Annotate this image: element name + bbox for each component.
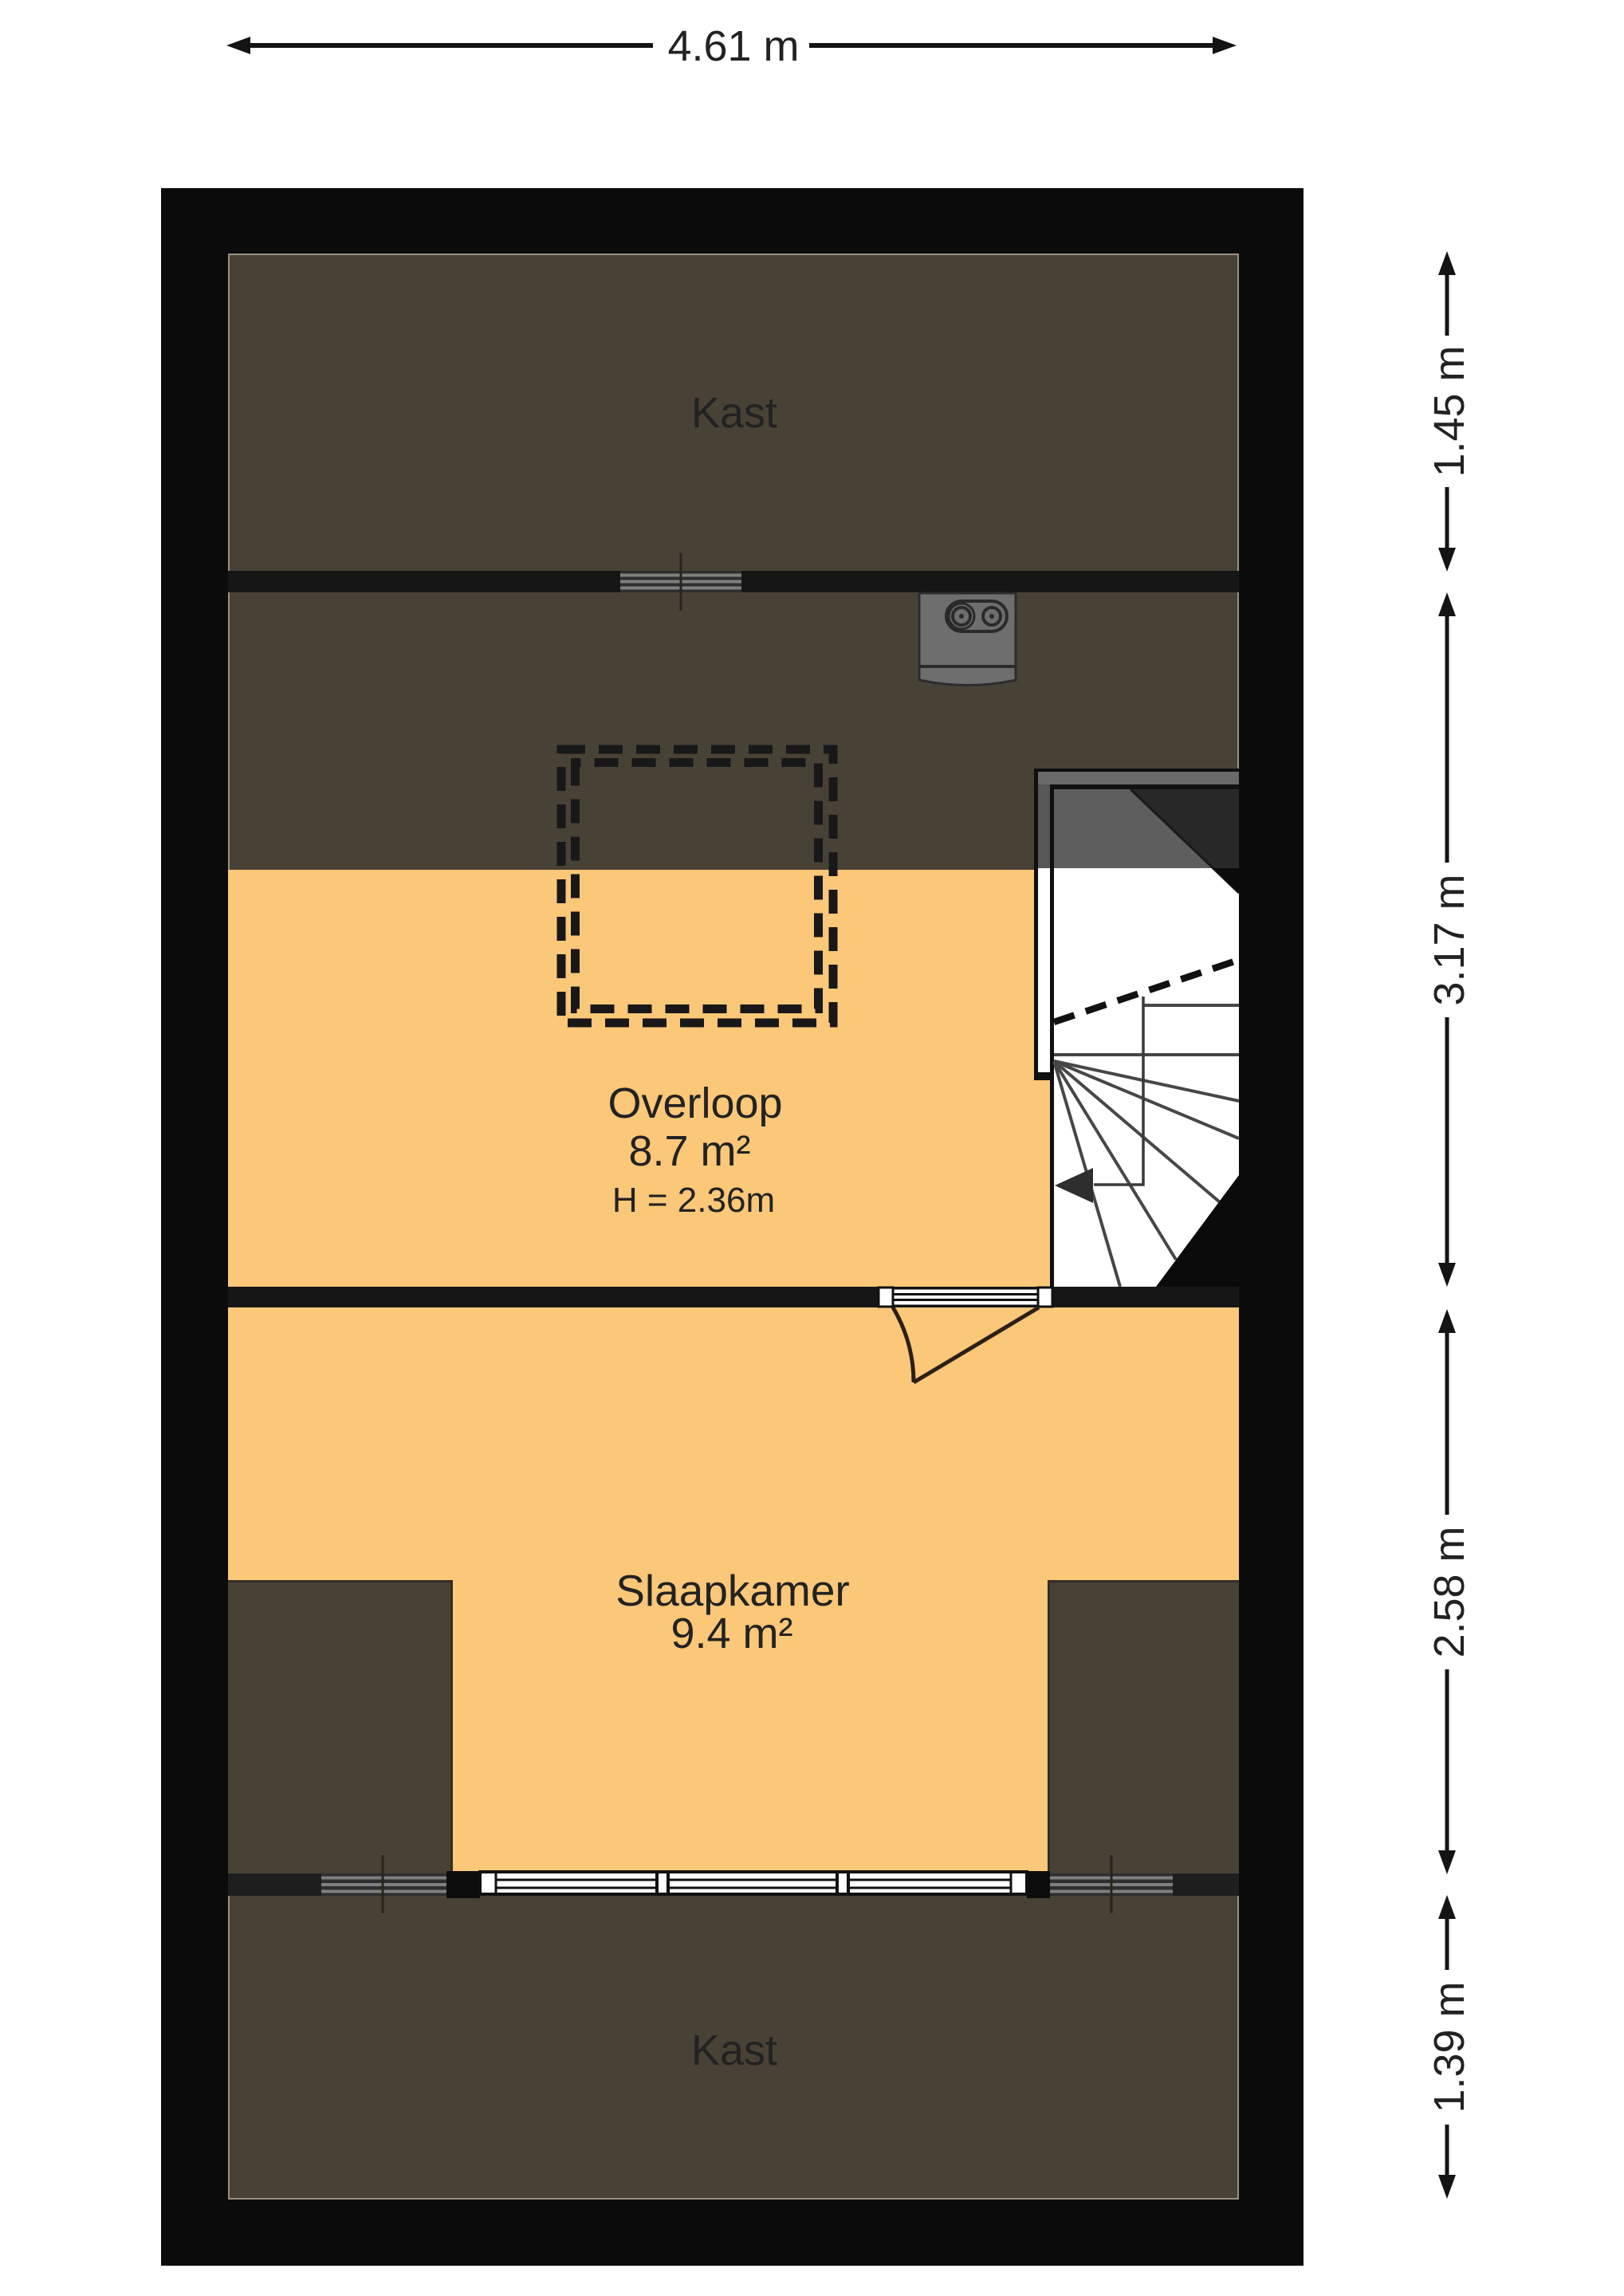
svg-text:Overloop: Overloop (608, 1079, 782, 1127)
svg-text:2.58 m: 2.58 m (1425, 1526, 1473, 1657)
svg-text:4.61 m: 4.61 m (667, 22, 799, 70)
svg-text:9.4 m²: 9.4 m² (670, 1610, 792, 1657)
svg-text:Kast: Kast (691, 2027, 777, 2074)
svg-text:H = 2.36m: H = 2.36m (612, 1181, 775, 1220)
svg-text:Kast: Kast (691, 389, 777, 437)
svg-text:3.17 m: 3.17 m (1425, 874, 1473, 1005)
svg-text:1.39 m: 1.39 m (1425, 1981, 1473, 2113)
svg-text:1.45 m: 1.45 m (1425, 345, 1473, 477)
svg-text:Slaapkamer: Slaapkamer (615, 1566, 849, 1615)
svg-text:8.7 m²: 8.7 m² (628, 1127, 750, 1175)
